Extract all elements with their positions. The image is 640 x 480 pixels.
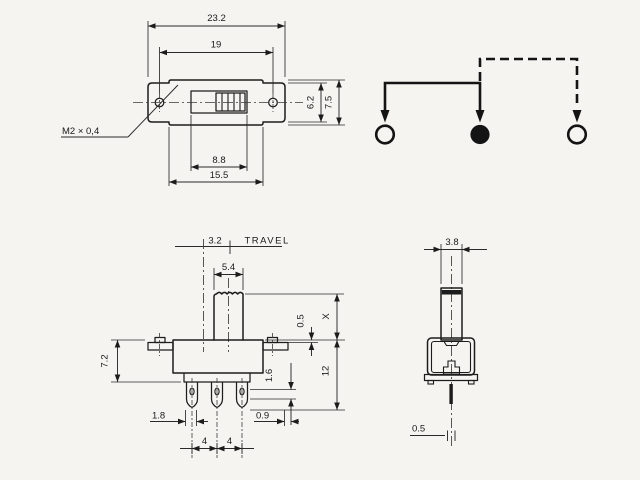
dim-knob-height-and-total: X 12 bbox=[250, 294, 345, 410]
dim-label-knob-width: 5.4 bbox=[222, 262, 235, 273]
arrow-center bbox=[476, 110, 485, 123]
terminal-right bbox=[568, 126, 586, 144]
dim-hole-spacing: 19 bbox=[160, 40, 274, 94]
terminal-left bbox=[376, 126, 394, 144]
dim-slot-width: 8.8 bbox=[191, 115, 247, 171]
side-view: 3.8 0.5 bbox=[410, 237, 487, 446]
arrow-left bbox=[381, 110, 390, 123]
side-body bbox=[428, 338, 475, 375]
dim-label-hole-spacing: 19 bbox=[211, 40, 222, 51]
technical-drawing-page: 23.2 19 6.2 7.5 8.8 bbox=[0, 0, 640, 480]
dim-label-slot-width: 8.8 bbox=[212, 155, 225, 166]
dim-ear-height: 6.2 bbox=[288, 83, 327, 122]
dim-label-knob-depth: 3.8 bbox=[445, 237, 458, 248]
dim-label-ear-gap: 0.5 bbox=[296, 314, 307, 327]
thread-callout: M2 × 0,4 bbox=[61, 85, 178, 137]
side-pin bbox=[449, 384, 452, 404]
dim-label-ear-height: 6.2 bbox=[306, 96, 317, 109]
side-base bbox=[425, 375, 478, 385]
dim-label-pitch-a: 4 bbox=[202, 436, 207, 447]
arrow-right bbox=[573, 110, 582, 123]
dim-label-travel: 3.2 bbox=[208, 236, 221, 247]
solid-link bbox=[385, 83, 480, 111]
dim-knob-depth: 3.8 bbox=[424, 237, 487, 284]
dim-pin-dia: 0.5 bbox=[410, 424, 455, 442]
dim-label-overall-width: 23.2 bbox=[207, 13, 226, 24]
dim-pin-pitch: 4 4 bbox=[180, 436, 254, 454]
dim-pin-thickness: 0.9 bbox=[254, 410, 299, 426]
top-view-slot bbox=[191, 91, 247, 113]
front-ears bbox=[148, 333, 288, 356]
dim-label-knob-height: X bbox=[321, 313, 332, 320]
front-body bbox=[173, 340, 263, 382]
terminal-center bbox=[470, 125, 489, 144]
dim-body-height-front: 7.2 bbox=[100, 340, 182, 382]
dim-label-center-width: 15.5 bbox=[210, 170, 229, 181]
top-view: 23.2 19 6.2 7.5 8.8 bbox=[61, 13, 345, 186]
travel-word: TRAVEL bbox=[245, 236, 290, 247]
dim-label-pin-thickness: 0.9 bbox=[256, 411, 269, 422]
front-view: 3.2 TRAVEL 5.4 bbox=[100, 236, 346, 459]
dim-ear-gap: 0.5 bbox=[288, 314, 318, 356]
dim-pin-width: 1.8 bbox=[150, 410, 208, 426]
dim-label-body-height-top: 7.5 bbox=[324, 96, 335, 109]
dim-label-pitch-b: 4 bbox=[227, 436, 232, 447]
dashed-link bbox=[480, 59, 577, 107]
thread-callout-label: M2 × 0,4 bbox=[62, 126, 99, 137]
knob-band bbox=[442, 290, 461, 295]
dim-label-pin-width: 1.8 bbox=[152, 411, 165, 422]
dim-label-body-height-front: 7.2 bbox=[100, 354, 111, 367]
dim-travel: 3.2 TRAVEL bbox=[175, 236, 290, 255]
circuit-schematic bbox=[376, 59, 586, 144]
dim-label-step: 1.6 bbox=[264, 369, 275, 382]
drawing-canvas: 23.2 19 6.2 7.5 8.8 bbox=[0, 0, 640, 480]
top-view-knob bbox=[216, 93, 245, 111]
dim-label-pin-dia: 0.5 bbox=[412, 424, 425, 435]
dim-label-total-height: 12 bbox=[321, 366, 332, 377]
